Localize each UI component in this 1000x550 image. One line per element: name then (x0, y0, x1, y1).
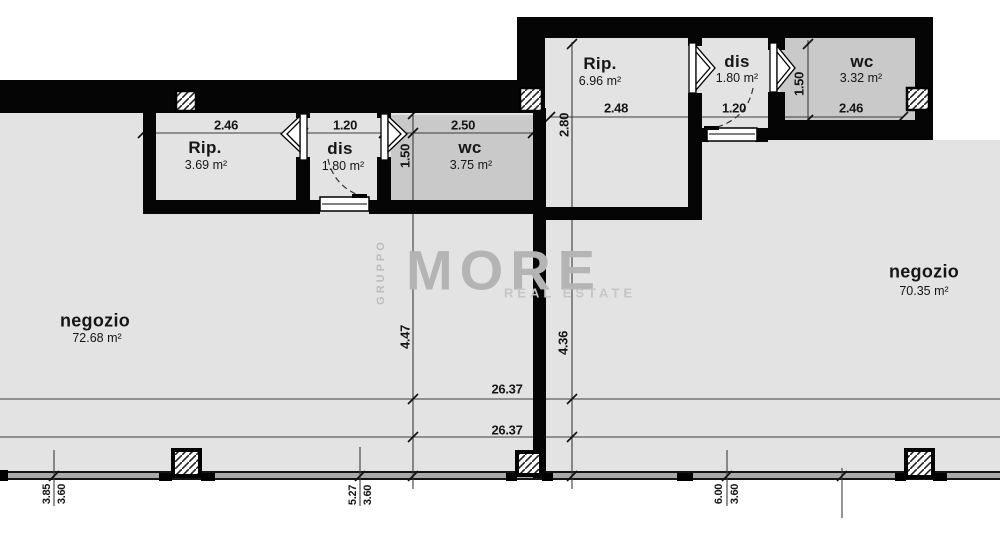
dim-overall-width-a: 26.37 (491, 382, 522, 397)
dim-front-2b: 3.60 (362, 485, 374, 505)
dim-front-1b: 3.60 (56, 484, 68, 504)
wall-right-rip-bottom (533, 207, 702, 220)
room-area-right-wc: 3.32 m² (840, 71, 882, 85)
watermark-group-label: GRUPPO (375, 239, 387, 305)
room-label-left-rip: Rip. (188, 138, 221, 158)
room-area-left-wc: 3.75 m² (450, 158, 492, 172)
dim-right-wc-depth: 1.50 (792, 72, 807, 96)
wall-left-partition-b (377, 157, 391, 202)
floor-plan: GRUPPO MORE REAL ESTATE (0, 0, 1000, 550)
dim-front-3a: 6.00 (713, 484, 725, 504)
room-area-left-negozio: 72.68 m² (72, 331, 121, 345)
wall-left-partition-b-stub-top (377, 113, 391, 118)
dim-left-wc-width: 2.50 (451, 118, 475, 133)
room-area-right-rip: 6.96 m² (579, 74, 621, 88)
wall-left-partition-a (296, 157, 310, 202)
dim-left-dis-width: 1.20 (333, 118, 357, 133)
room-label-right-dis: dis (724, 52, 749, 72)
dim-right-depth: 4.36 (556, 331, 571, 355)
room-label-right-wc: wc (850, 52, 873, 72)
dim-overall-width-b: 26.37 (491, 423, 522, 438)
wall-left-rip-left (143, 113, 156, 212)
wall-right-wc-bottom (768, 120, 933, 140)
wall-left-partition-a-stub-top (296, 113, 310, 118)
wall-right-partition-b-stub-top (768, 38, 785, 50)
floor-right-negozio-edge (915, 140, 1000, 478)
room-area-right-negozio: 70.35 m² (899, 284, 948, 298)
wall-right-top (517, 17, 933, 38)
room-area-left-dis: 1.80 m² (322, 159, 364, 173)
dim-right-wc-width: 2.46 (839, 101, 863, 116)
dim-left-wc-depth: 1.50 (398, 144, 413, 168)
room-area-right-dis: 1.80 m² (716, 71, 758, 85)
wall-left-top (0, 80, 545, 113)
room-label-left-wc: wc (458, 138, 481, 158)
room-label-left-dis: dis (327, 139, 352, 159)
wall-right-rip-right (688, 93, 702, 220)
wall-left-strip-bottom-b (369, 200, 533, 214)
dim-left-depth: 4.47 (398, 325, 413, 349)
dim-right-rip-width: 2.48 (604, 101, 628, 116)
wall-right-dis-bottom-a (702, 128, 709, 142)
wall-right-dis-bottom-b (755, 128, 768, 142)
dim-front-1a: 3.85 (41, 484, 53, 504)
wall-right-partition-a-stub-top (688, 38, 702, 46)
dim-front-2a: 5.27 (347, 485, 359, 505)
dim-left-rip-width: 2.46 (214, 118, 238, 133)
storefront-glass-line (0, 471, 1000, 480)
dim-right-dis-width: 1.20 (722, 101, 746, 116)
dim-front-3b: 3.60 (729, 484, 741, 504)
wall-right-exterior (915, 38, 933, 140)
wall-right-left-thick (517, 17, 545, 113)
room-area-left-rip: 3.69 m² (185, 158, 227, 172)
room-label-right-rip: Rip. (583, 54, 616, 74)
watermark-tagline: REAL ESTATE (504, 286, 636, 301)
room-label-right-negozio: negozio (889, 262, 959, 283)
dim-right-rip-depth: 2.80 (557, 113, 572, 137)
room-label-left-negozio: negozio (60, 311, 130, 332)
wall-left-strip-bottom-a (143, 200, 320, 214)
